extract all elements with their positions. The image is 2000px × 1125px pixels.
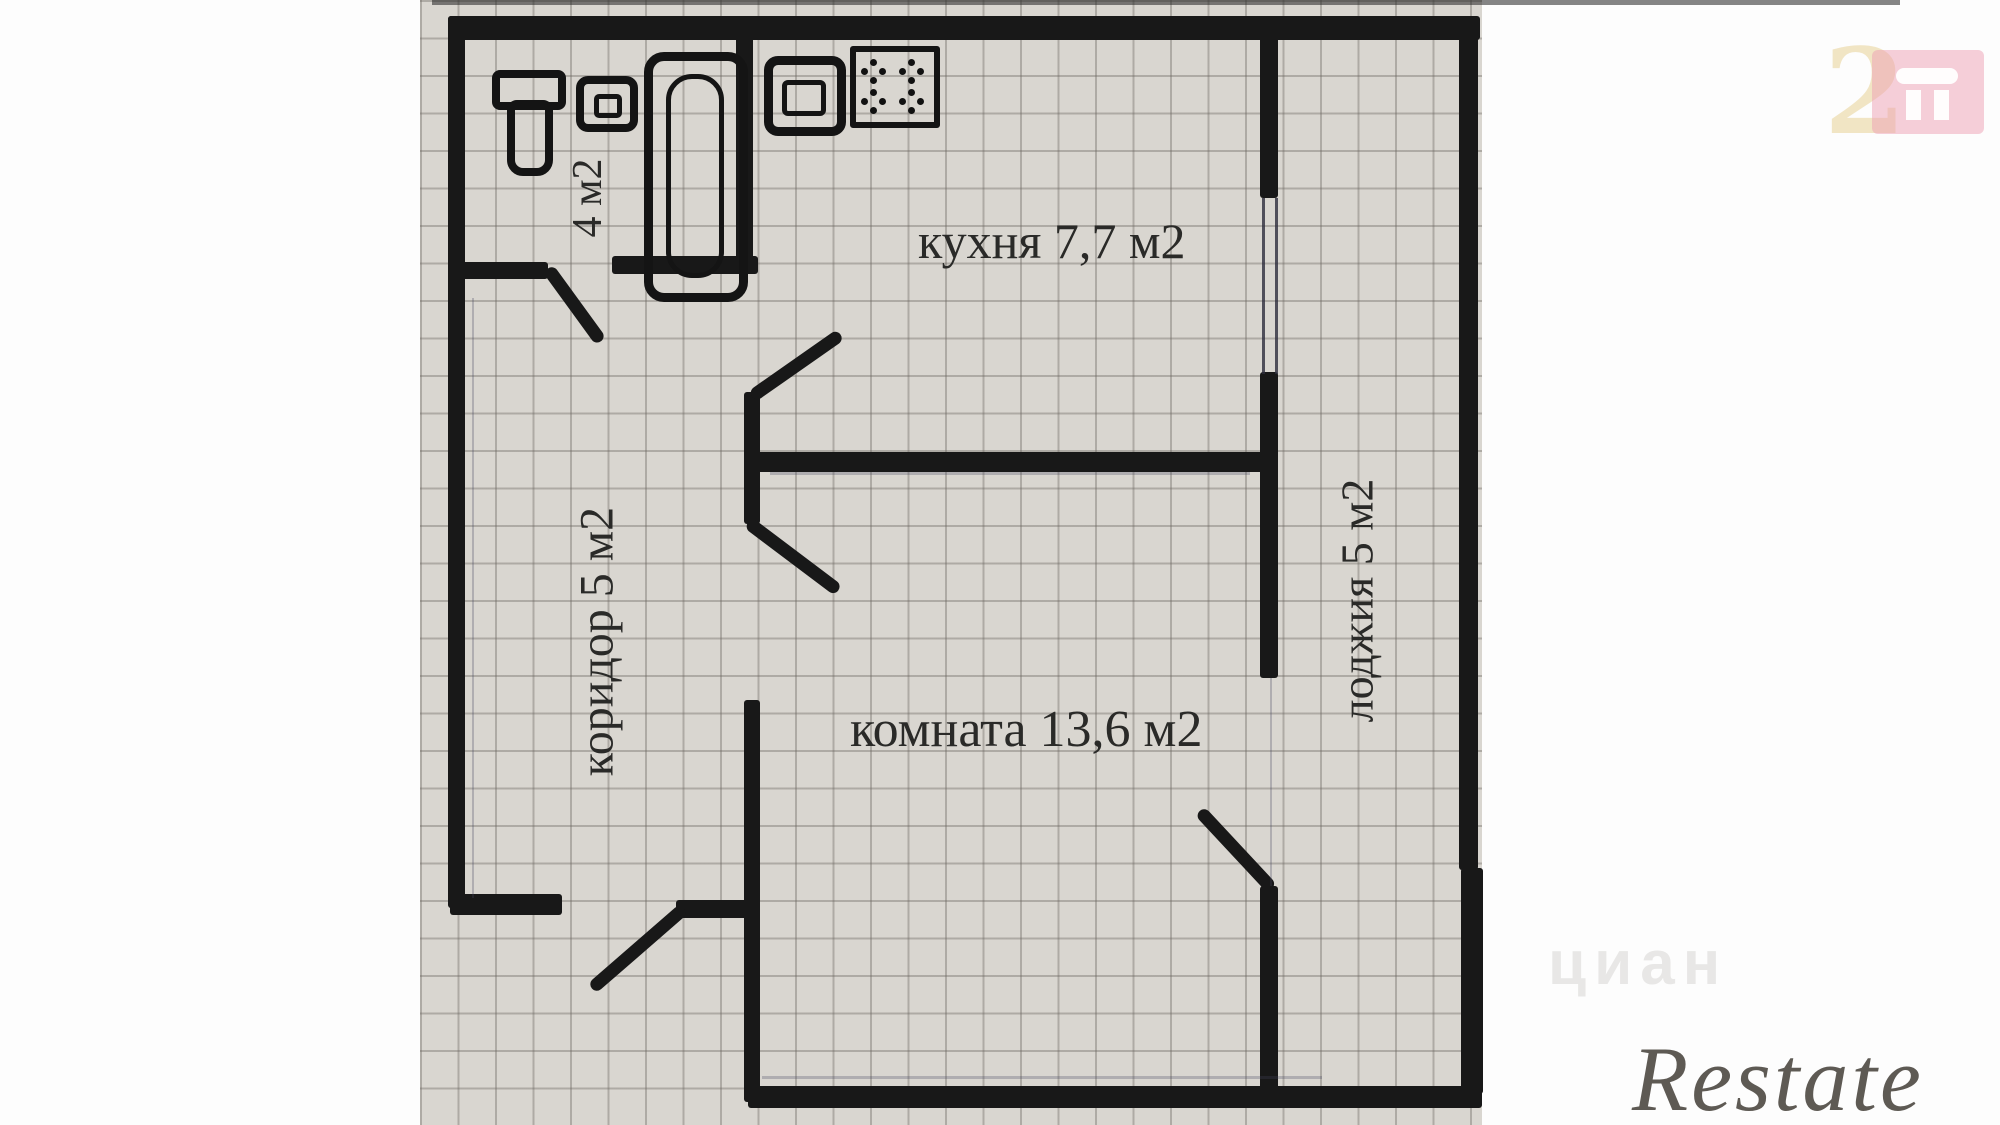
wall-outer-left <box>448 16 465 908</box>
wall-kitchen-room <box>752 452 1274 472</box>
loggia-window-line <box>1275 198 1278 374</box>
wash-basin-icon <box>594 94 622 118</box>
wall-outer-bottom <box>748 1086 1482 1108</box>
wall-corridor-room <box>744 700 760 1102</box>
pencil-line <box>472 298 474 898</box>
faint-portal-watermark: циан <box>1548 928 1728 999</box>
corridor-label: коридор 5 м2 <box>570 472 625 812</box>
bathroom-area-label: 4 м2 <box>564 123 612 273</box>
stove-icon <box>850 46 940 128</box>
floor-plan-scan: кухня 7,7 м2 комната 13,6 м2 коридор 5 м… <box>0 0 2000 1125</box>
kitchen-label: кухня 7,7 м2 <box>918 212 1185 270</box>
kitchen-sink-icon <box>782 80 826 116</box>
site-logo-icon <box>1872 50 1984 134</box>
wall-loggia-upper <box>1260 28 1278 198</box>
paper-crease <box>1270 678 1272 886</box>
stove-burner-icon <box>908 98 915 105</box>
stove-burner-icon <box>870 68 877 75</box>
wall-corridor-bottom <box>450 894 562 915</box>
stove-burner-icon <box>870 98 877 105</box>
loggia-label: лоджия 5 м2 <box>1331 431 1384 771</box>
wall-outer-right-upper <box>1459 16 1478 870</box>
loggia-window-line <box>1262 198 1265 374</box>
scan-edge-line <box>432 0 1900 5</box>
pencil-line <box>762 1076 1322 1079</box>
wall-loggia-middle <box>1260 372 1278 678</box>
pencil-line <box>770 472 1250 475</box>
restate-watermark: Restate <box>1632 1026 1924 1125</box>
stove-burner-icon <box>908 68 915 75</box>
site-logo-glyph <box>1934 90 1949 120</box>
bathtub-icon <box>666 74 724 278</box>
room-label: комната 13,6 м2 <box>850 700 1202 759</box>
wall-bathroom-bottom-left <box>452 262 548 279</box>
wall-outer-top <box>448 16 1480 40</box>
wall-outer-right-lower <box>1461 868 1483 1094</box>
toilet-icon <box>507 100 553 176</box>
site-logo-glyph <box>1906 90 1921 120</box>
site-logo-glyph <box>1896 68 1958 84</box>
wall-loggia-lower <box>1260 886 1278 1100</box>
